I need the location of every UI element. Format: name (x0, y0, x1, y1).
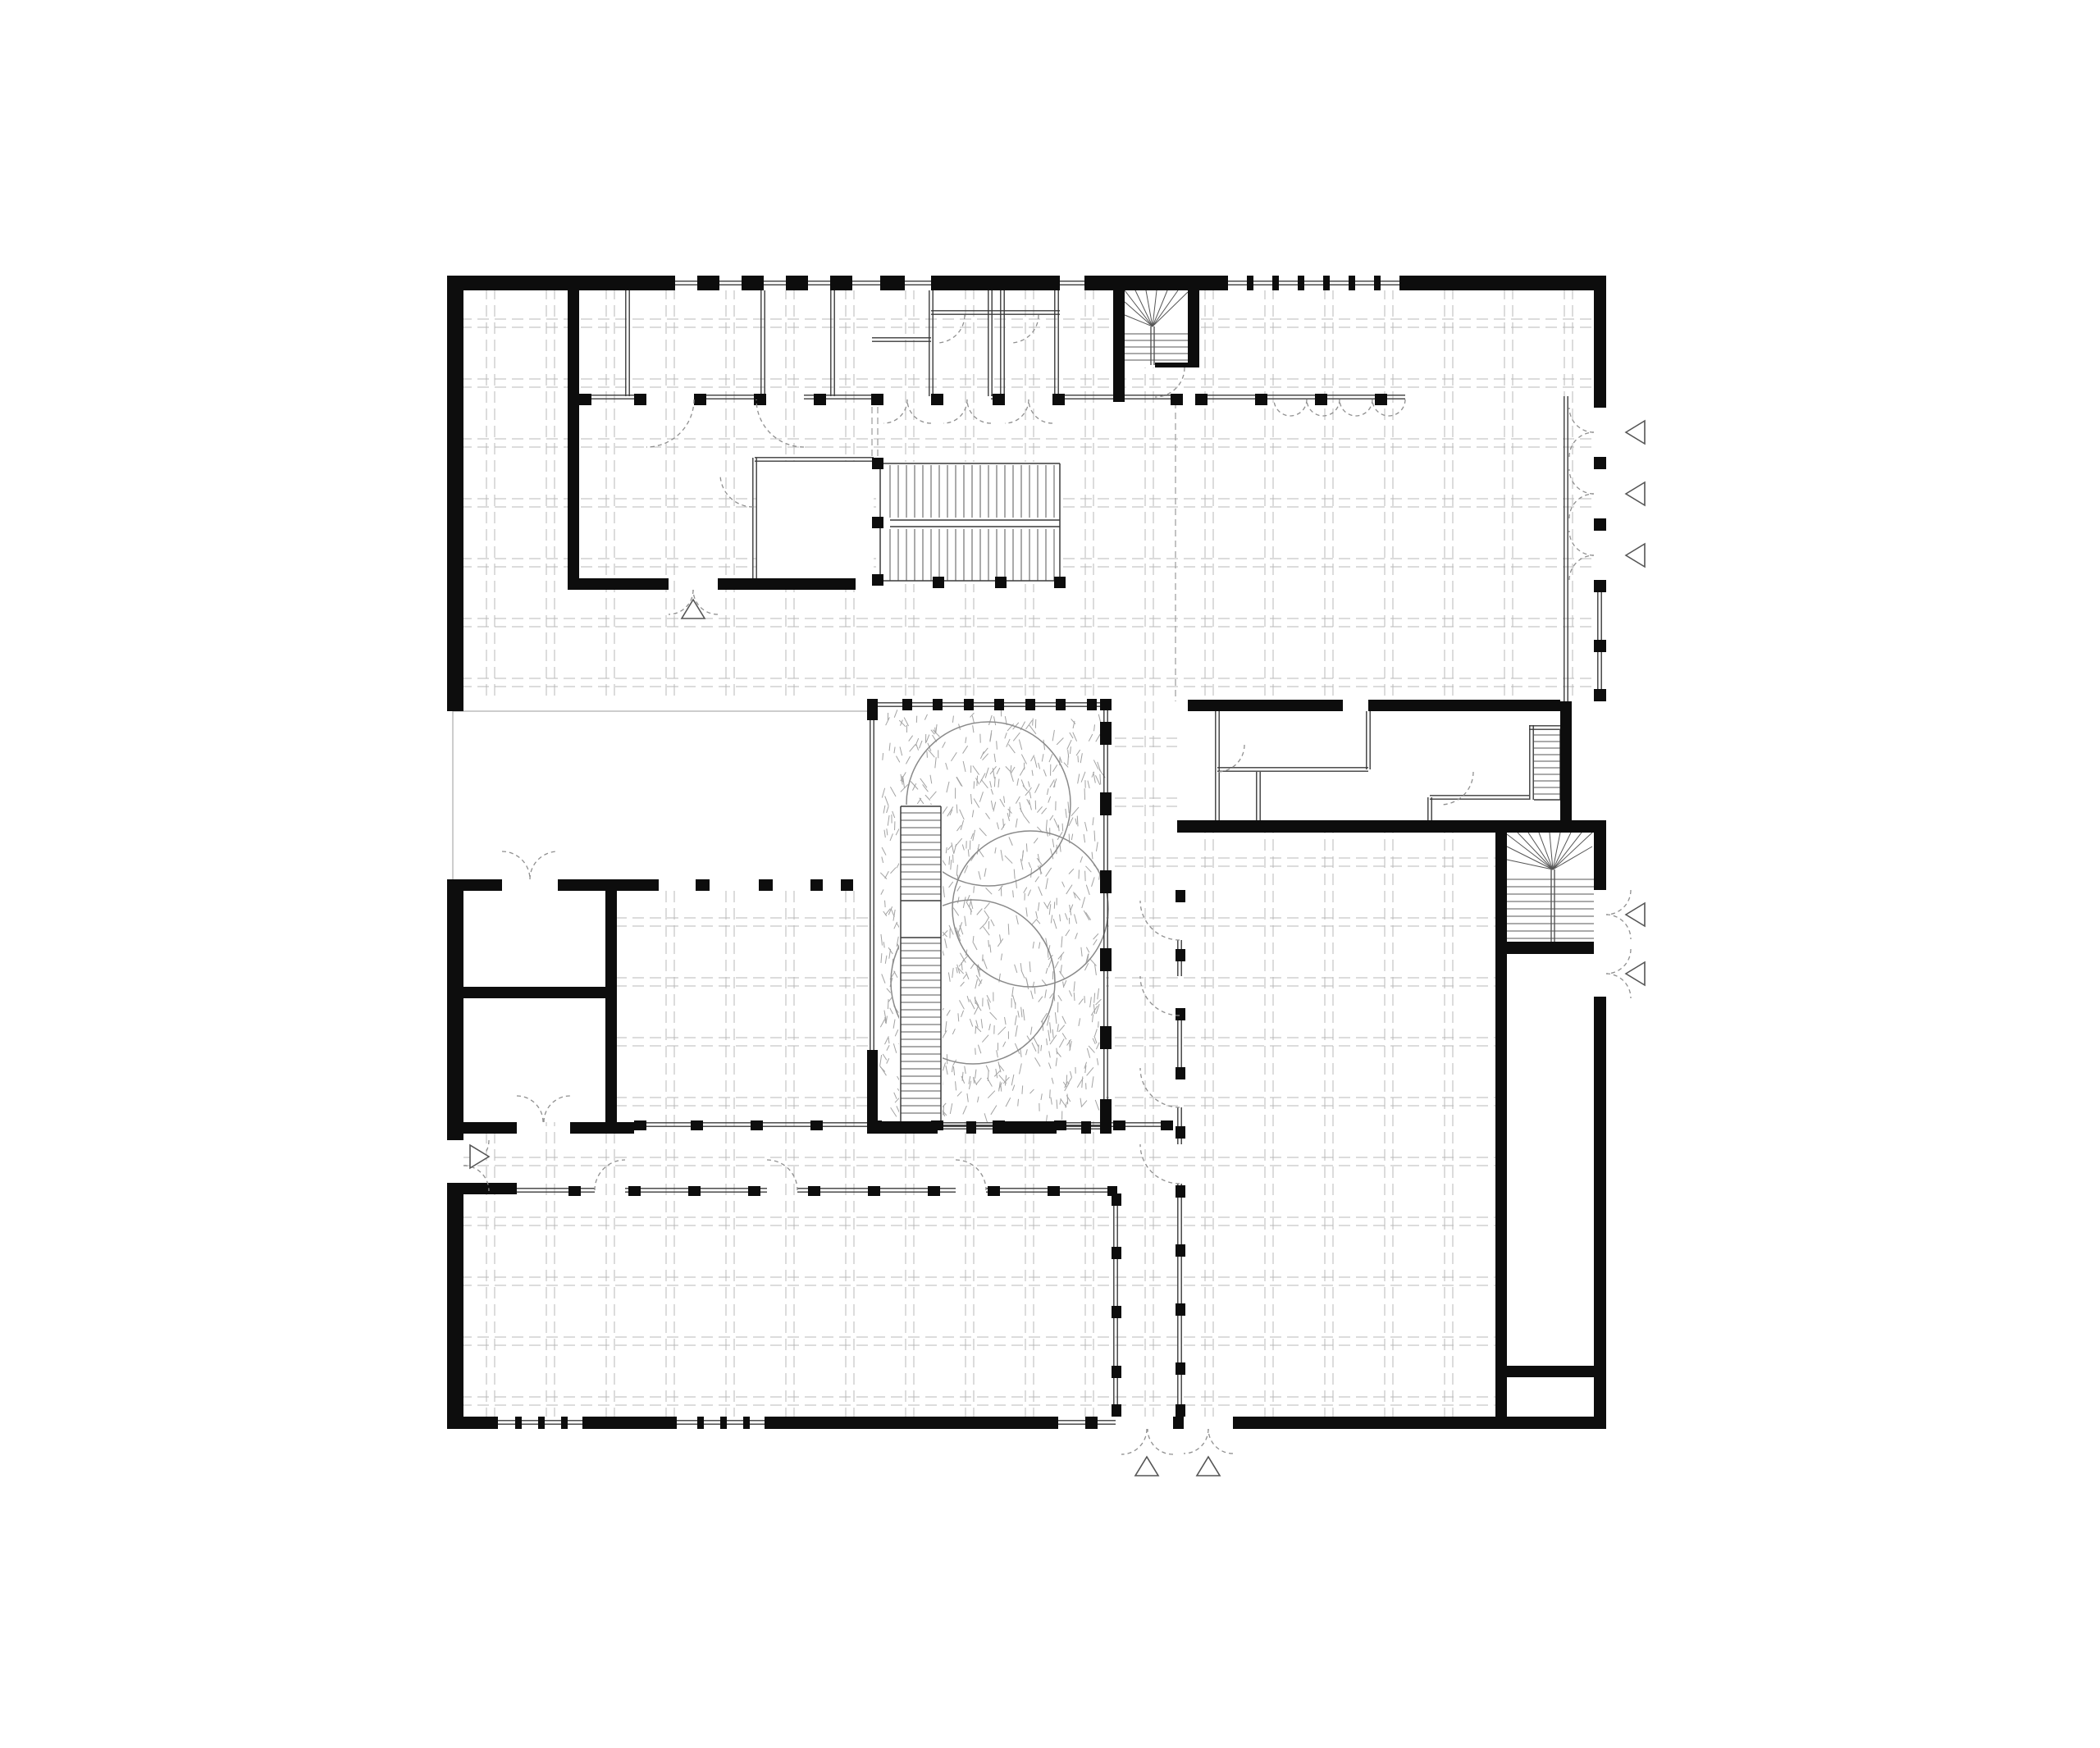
wall-segment (561, 1417, 568, 1429)
wall-segment (870, 1120, 882, 1130)
wall-segment (463, 987, 617, 998)
hatch-stroke (1026, 843, 1027, 851)
wall-segment (568, 578, 669, 590)
wall-segment (1100, 722, 1112, 745)
wall-segment (902, 699, 912, 710)
hatch-stroke (885, 901, 886, 907)
wall-segment (1056, 699, 1066, 710)
wall-segment (1507, 1366, 1596, 1377)
wall-segment (1594, 689, 1606, 701)
wall-segment (1100, 948, 1112, 971)
wall-segment (605, 891, 617, 1134)
wall-segment (880, 276, 905, 290)
floor-plan-drawing (0, 0, 2100, 1748)
wall-segment (931, 276, 1060, 290)
wall-segment (928, 1186, 940, 1196)
wall-segment (568, 287, 579, 590)
wall-segment (1100, 870, 1112, 893)
wall-segment (993, 394, 1005, 405)
wall-segment (1188, 700, 1343, 711)
wall-segment (447, 879, 502, 891)
wall-segment (1161, 1120, 1173, 1130)
wall-segment (634, 394, 646, 405)
wall-segment (867, 699, 878, 720)
wall-segment (579, 394, 591, 405)
wall-segment (1176, 1185, 1185, 1198)
wall-segment (447, 1183, 517, 1194)
wall-segment (1112, 1306, 1121, 1318)
wall-segment (1195, 394, 1207, 405)
wall-segment (748, 1186, 760, 1196)
wall-segment (1054, 577, 1066, 588)
room-fill (876, 462, 1061, 584)
wall-segment (1100, 792, 1112, 815)
wall-segment (1374, 276, 1381, 290)
wall-segment (765, 1417, 1058, 1429)
wall-segment (1349, 276, 1355, 290)
wall-segment (1112, 1366, 1121, 1378)
wall-segment (1171, 394, 1183, 405)
wall-segment (1052, 394, 1065, 405)
wall-segment (872, 458, 883, 469)
wall-segment (1495, 833, 1507, 1429)
wall-segment (830, 276, 852, 290)
wall-segment (628, 1186, 641, 1196)
wall-segment (447, 1417, 498, 1429)
wall-segment (697, 1417, 704, 1429)
wall-segment (718, 578, 856, 590)
wall-segment (1298, 276, 1304, 290)
hatch-stroke (975, 1048, 976, 1055)
wall-segment (1233, 1417, 1606, 1429)
hatch-stroke (888, 999, 888, 1009)
wall-segment (582, 1417, 677, 1429)
wall-segment (515, 1417, 522, 1429)
wall-segment (786, 276, 808, 290)
hatch-stroke (1033, 719, 1034, 726)
wall-segment (1155, 363, 1188, 367)
hatch-stroke (1084, 996, 1085, 1003)
wall-segment (742, 276, 764, 290)
wall-segment (1100, 1121, 1112, 1134)
wall-segment (1507, 942, 1594, 954)
wall-segment (993, 1120, 1005, 1130)
wall-segment (1176, 1008, 1185, 1020)
wall-segment (1176, 1244, 1185, 1257)
wall-segment (966, 1121, 976, 1134)
wall-segment (696, 879, 710, 891)
wall-segment (1100, 699, 1112, 710)
wall-segment (1176, 1404, 1185, 1417)
wall-segment (868, 1186, 880, 1196)
wall-segment (931, 394, 943, 405)
wall-segment (447, 879, 463, 1140)
wall-segment (931, 1120, 943, 1130)
wall-segment (1594, 396, 1606, 408)
wall-segment (1084, 276, 1228, 290)
wall-segment (558, 879, 659, 891)
wall-segment (810, 1120, 823, 1130)
hatch-stroke (977, 776, 978, 786)
wall-segment (995, 577, 1007, 588)
wall-segment (1176, 890, 1185, 902)
wall-segment (1594, 457, 1606, 469)
wall-segment (1054, 1120, 1066, 1130)
wall-segment (697, 276, 719, 290)
wall-segment (634, 1120, 646, 1130)
wall-segment (814, 394, 826, 405)
hatch-stroke (1067, 1093, 1068, 1104)
wall-segment (1405, 276, 1606, 290)
wall-segment (691, 1120, 703, 1130)
wall-segment (1368, 700, 1560, 711)
wall-segment (447, 276, 675, 290)
wall-segment (1188, 290, 1199, 367)
room-fill (1188, 711, 1560, 820)
room-fill (756, 461, 872, 578)
wall-segment (988, 1186, 1000, 1196)
wall-segment (1081, 1121, 1091, 1134)
wall-segment (447, 1122, 517, 1134)
wall-segment (1176, 949, 1185, 961)
wall-segment (872, 574, 883, 586)
wall-segment (808, 1186, 820, 1196)
hatch-stroke (1078, 755, 1079, 762)
room-fill (463, 891, 605, 1122)
wall-segment (1255, 394, 1267, 405)
wall-segment (1176, 1362, 1185, 1375)
wall-segment (964, 699, 974, 710)
wall-segment (1594, 580, 1606, 592)
wall-segment (688, 1186, 701, 1196)
wall-segment (1113, 1120, 1125, 1130)
wall-segment (1085, 1417, 1098, 1429)
courtyard-layer (874, 710, 1108, 1125)
hatch-stroke (974, 781, 975, 788)
wall-segment (751, 1120, 763, 1130)
wall-segment (568, 1186, 581, 1196)
hatch-stroke (1034, 988, 1035, 994)
wall-segment (1594, 640, 1606, 652)
hatch-stroke (1062, 824, 1063, 832)
wall-segment (743, 1417, 750, 1429)
wall-segment (871, 394, 883, 405)
wall-segment (1112, 1247, 1121, 1259)
wall-segment (1272, 276, 1279, 290)
wall-segment (1048, 1186, 1060, 1196)
wall-segment (933, 699, 943, 710)
wall-segment (1112, 1193, 1121, 1206)
hatch-stroke (1085, 871, 1086, 882)
wall-segment (1176, 1303, 1185, 1316)
wall-segment (694, 394, 706, 405)
wall-segment (447, 276, 463, 711)
wall-segment (1323, 276, 1330, 290)
room-fill (1125, 290, 1188, 367)
wall-segment (1594, 276, 1606, 396)
wall-segment (994, 699, 1004, 710)
wall-segment (720, 1417, 727, 1429)
wall-segment (1087, 699, 1097, 710)
wall-segment (1594, 518, 1606, 531)
wall-segment (1176, 1067, 1185, 1079)
wall-segment (1315, 394, 1327, 405)
hatch-stroke (1050, 1089, 1051, 1098)
wall-segment (933, 577, 944, 588)
room-fill (1507, 954, 1594, 1417)
wall-segment (810, 879, 823, 891)
wall-segment (1399, 276, 1405, 290)
wall-segment (570, 1122, 634, 1134)
wall-segment (447, 1191, 463, 1427)
wall-segment (759, 879, 773, 891)
wall-segment (1112, 1404, 1121, 1417)
garden-stair-base (899, 805, 943, 1123)
wall-segment (841, 879, 853, 891)
wall-segment (1025, 699, 1035, 710)
hatch-stroke (974, 886, 975, 892)
wall-segment (872, 517, 883, 528)
wall-segment (1113, 290, 1125, 402)
wall-segment (538, 1417, 545, 1429)
wall-segment (1375, 394, 1387, 405)
wall-segment (1173, 1417, 1184, 1429)
wall-segment (1247, 276, 1253, 290)
wall-segment (1176, 1126, 1185, 1139)
wall-segment (1560, 701, 1572, 833)
wall-segment (1100, 1099, 1112, 1121)
wall-segment (1177, 820, 1606, 833)
hatch-stroke (1011, 765, 1011, 772)
wall-segment (754, 394, 766, 405)
wall-segment (1100, 1026, 1112, 1049)
wall-segment (1594, 997, 1606, 1429)
floor-plan-page (0, 0, 2100, 1748)
